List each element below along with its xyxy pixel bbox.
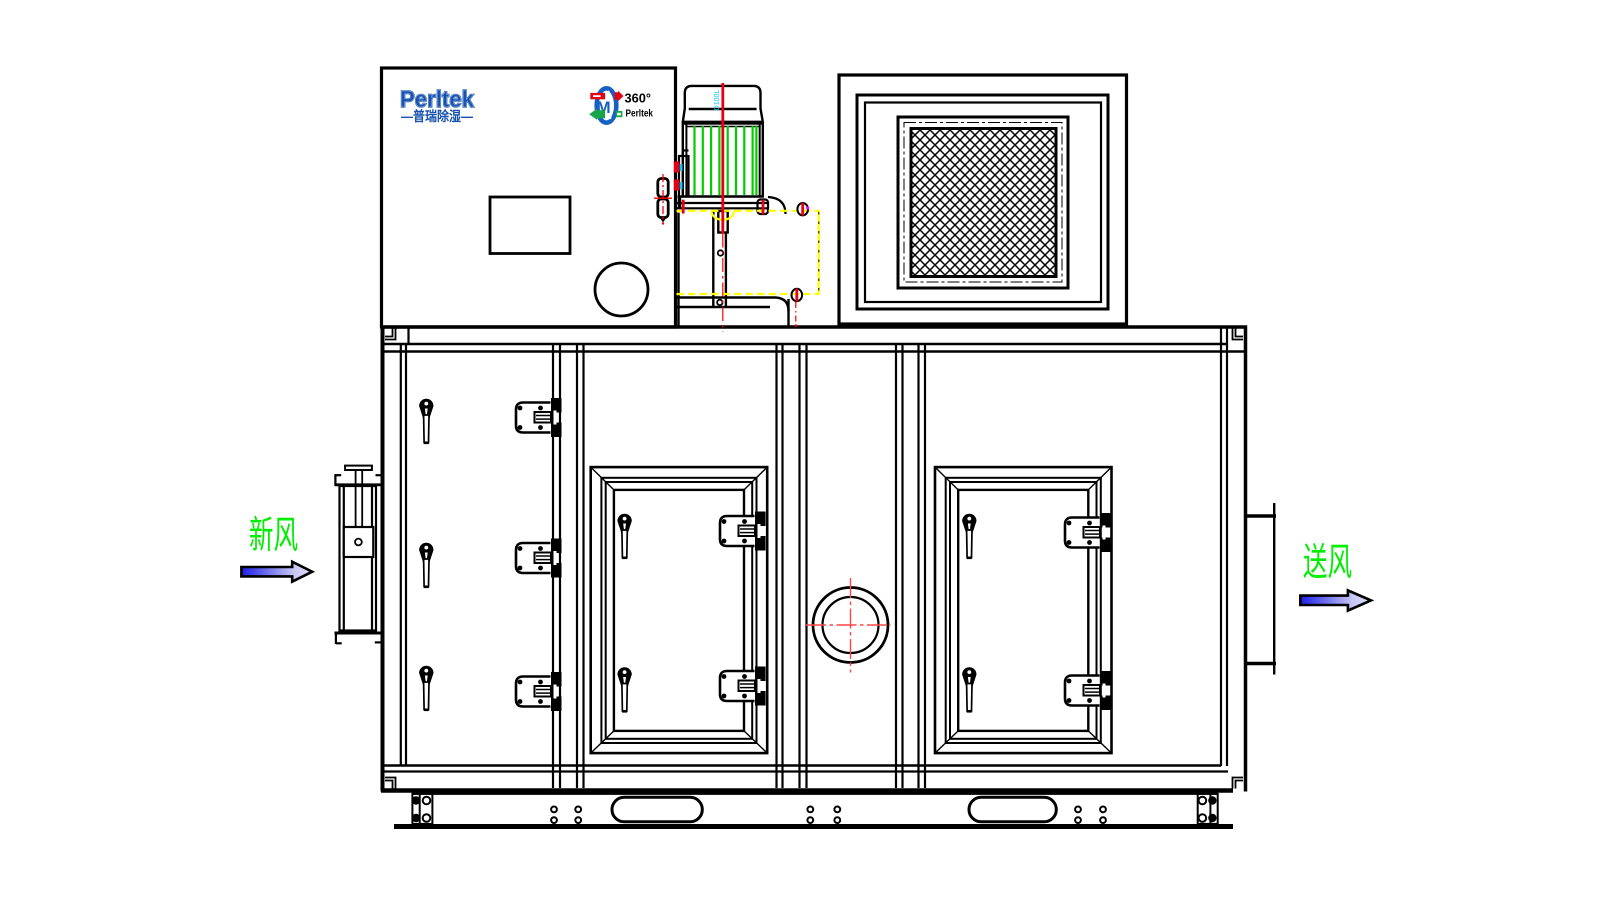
svg-text:Perltek: Perltek <box>626 109 654 120</box>
svg-text:360°: 360° <box>625 91 652 106</box>
svg-text:新风: 新风 <box>249 515 298 557</box>
svg-text:D100L: D100L <box>714 90 721 111</box>
svg-text:—普瑞除湿—: —普瑞除湿— <box>401 108 473 124</box>
svg-text:送风: 送风 <box>1303 542 1352 584</box>
